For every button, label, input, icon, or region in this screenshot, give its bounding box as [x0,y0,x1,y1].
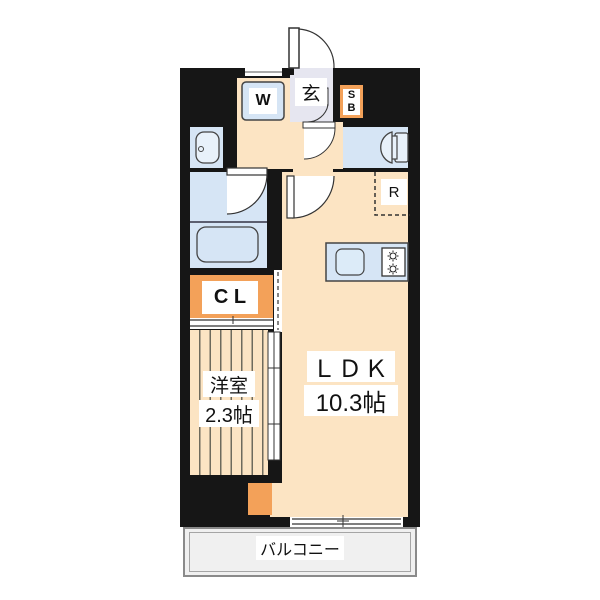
room-toilet [343,127,408,168]
room-label-ldk-size: 10.3帖 [304,385,398,416]
room-label-western-name: 洋室 [203,371,255,397]
room-label-balcony: バルコニー [256,536,344,560]
room-label-refrigerator: R [381,179,407,205]
entrance-door [289,28,334,68]
room-label-closet: C L [202,281,258,314]
floor-plan: 玄 W S B R C L 洋室 2.3帖 ＬＤＫ 10.3帖 バルコニー [0,0,600,600]
entrance-door-opening [294,68,333,76]
room-washbasin [190,127,223,168]
room-label-western-size: 2.3帖 [199,400,259,427]
room-label-shoe-box: S B [343,89,360,115]
room-label-ldk-name: ＬＤＫ [307,351,395,382]
ldk-door-opening [293,168,333,176]
pillar-block [248,483,272,515]
room-label-washer: W [249,88,277,114]
room-bathroom [190,172,267,268]
room-ldk [282,172,408,517]
hallway-right [290,122,343,169]
room-label-entrance: 玄 [295,78,327,106]
